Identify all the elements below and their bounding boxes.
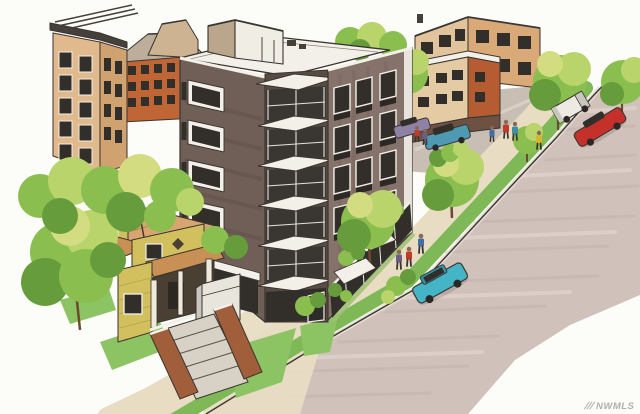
architectural-rendering: /// NWMLS <box>0 0 640 414</box>
watermark-text: NWMLS <box>596 401 635 412</box>
nwmls-watermark: /// NWMLS <box>582 401 634 412</box>
rendering-canvas: /// NWMLS <box>0 0 640 414</box>
